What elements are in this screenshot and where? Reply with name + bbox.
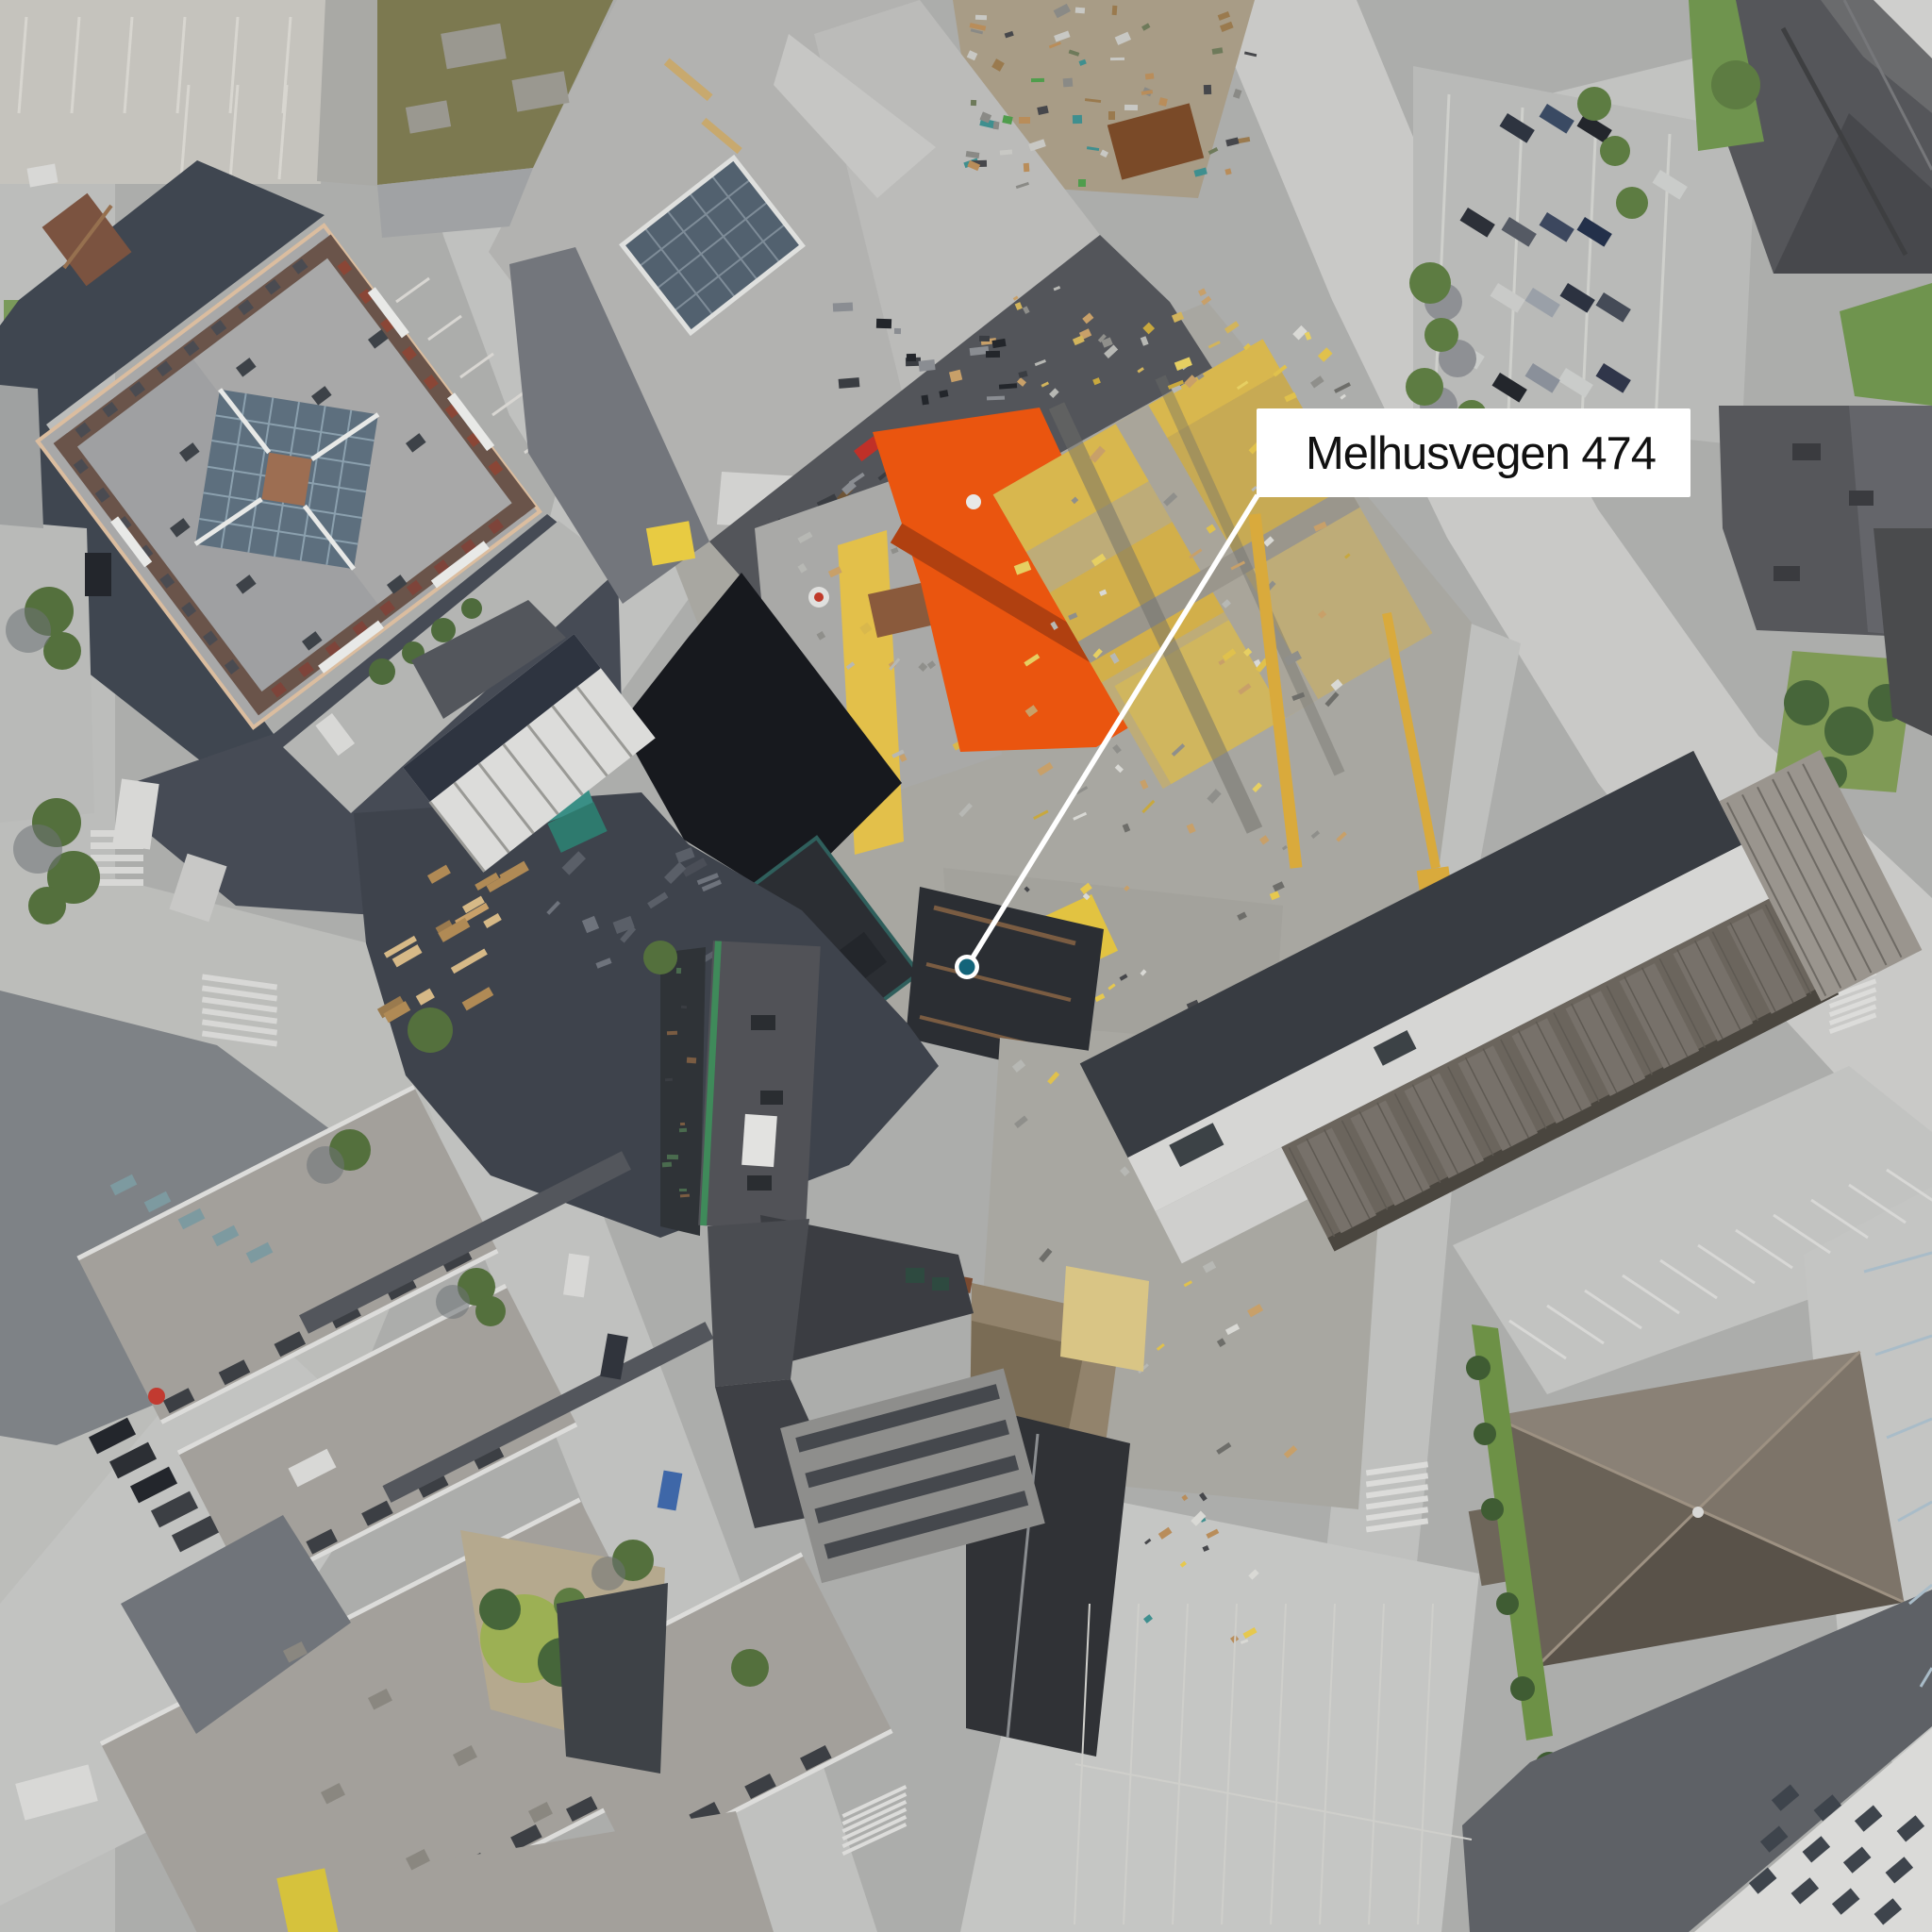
svg-text:Melhusvegen 474: Melhusvegen 474: [1306, 428, 1657, 479]
